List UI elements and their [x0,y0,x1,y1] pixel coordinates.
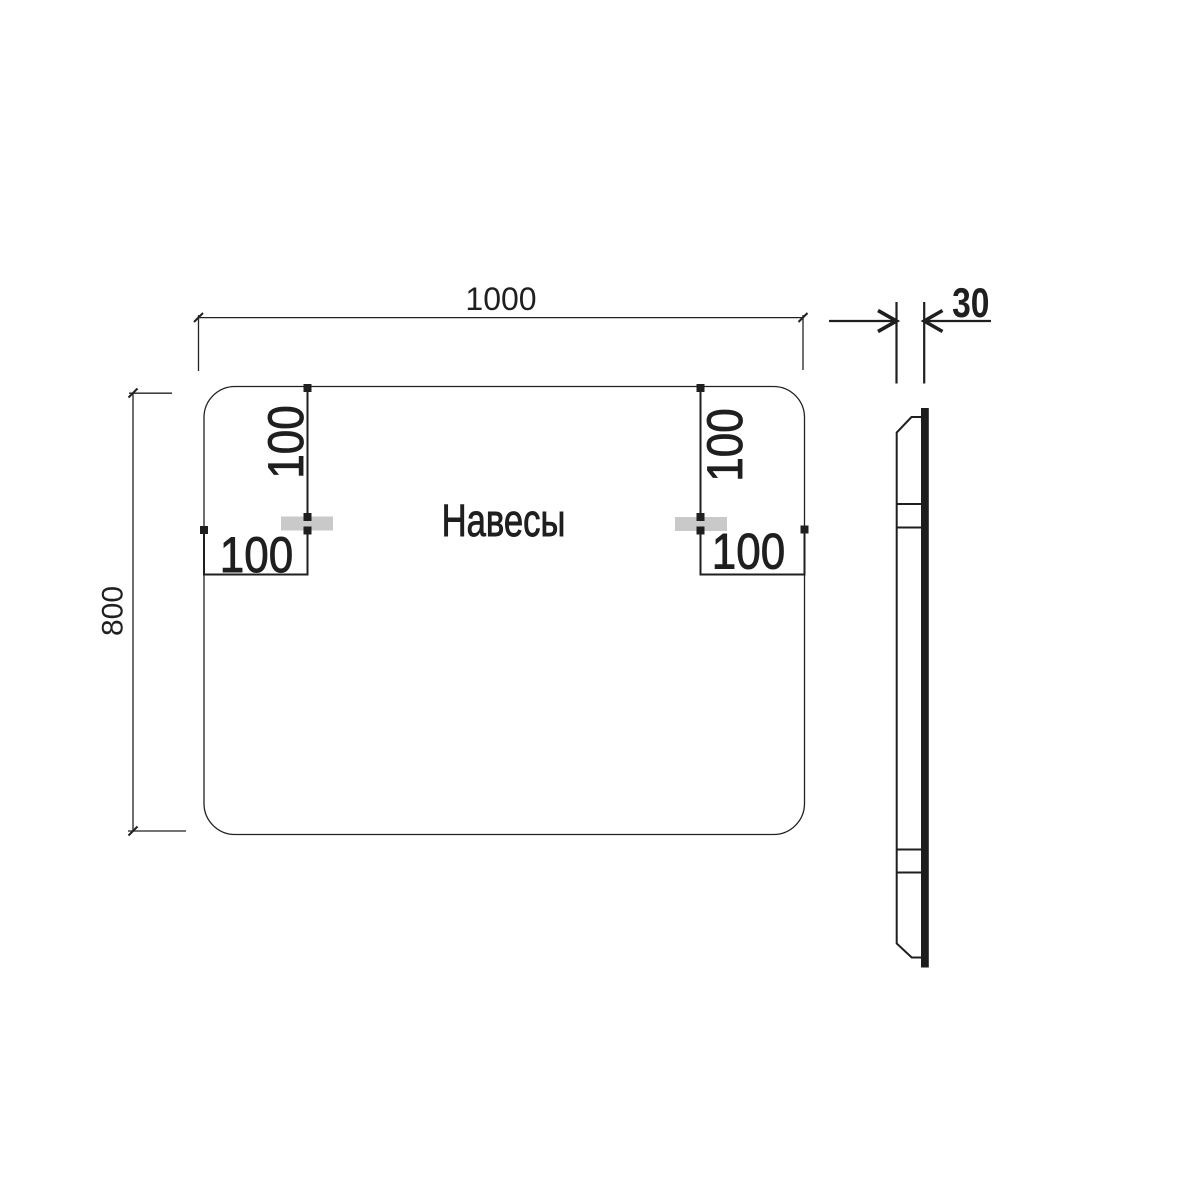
svg-text:30: 30 [952,281,989,327]
svg-text:100: 100 [220,526,293,582]
svg-text:100: 100 [696,408,752,481]
svg-text:1000: 1000 [465,281,536,317]
svg-text:800: 800 [97,586,130,636]
svg-text:100: 100 [712,523,785,579]
svg-text:Навесы: Навесы [442,496,566,546]
svg-text:100: 100 [257,405,313,478]
